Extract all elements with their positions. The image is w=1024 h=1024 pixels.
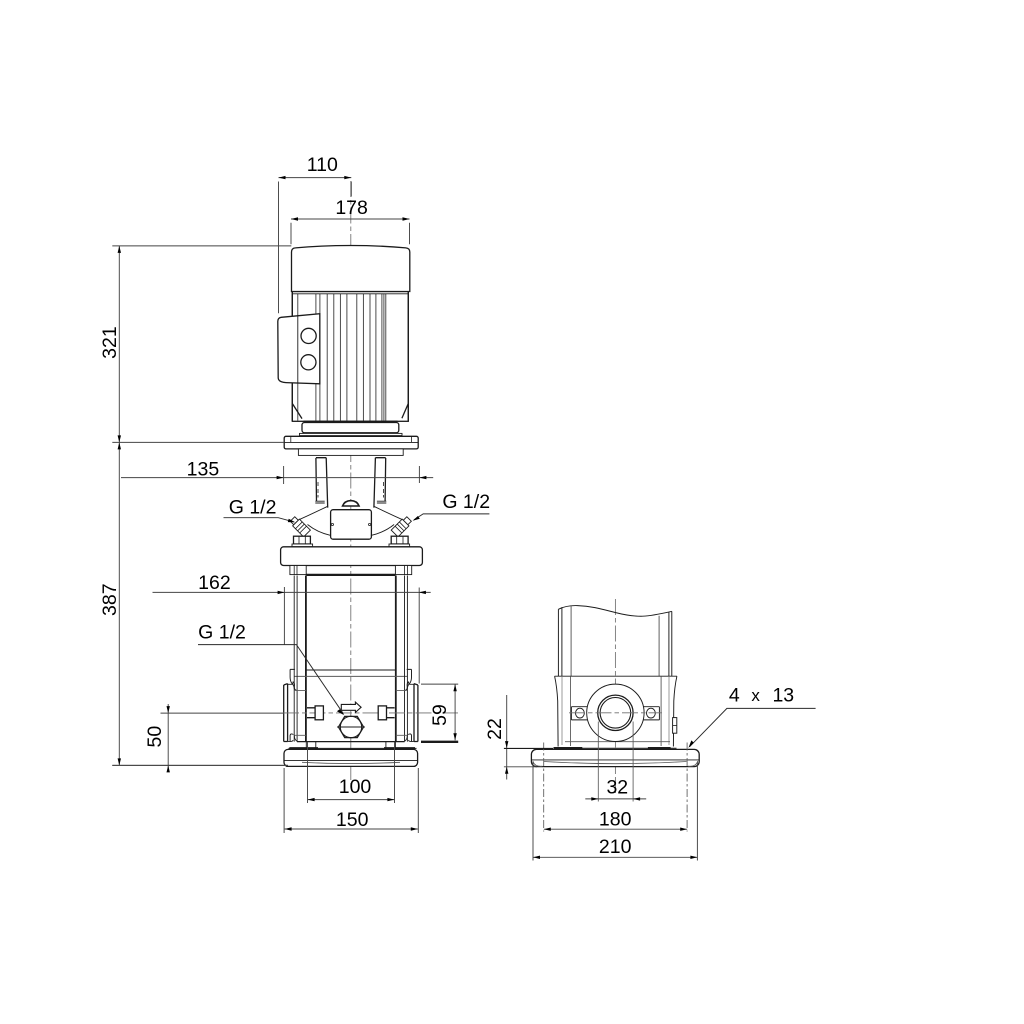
svg-text:x: x [751,686,760,705]
svg-text:G 1/2: G 1/2 [229,496,277,518]
svg-text:387: 387 [99,583,121,616]
svg-text:4: 4 [729,685,740,707]
svg-text:178: 178 [335,197,368,219]
svg-text:G 1/2: G 1/2 [442,491,490,513]
svg-text:13: 13 [772,685,794,707]
svg-text:321: 321 [99,326,121,359]
svg-text:100: 100 [339,776,372,798]
svg-text:150: 150 [336,809,369,831]
svg-text:32: 32 [606,777,628,799]
svg-text:110: 110 [307,154,338,176]
svg-text:210: 210 [599,836,632,858]
svg-text:180: 180 [599,808,632,830]
svg-text:G 1/2: G 1/2 [198,621,246,643]
svg-text:162: 162 [198,572,231,594]
svg-text:135: 135 [187,459,220,481]
svg-text:59: 59 [429,704,451,726]
svg-text:50: 50 [144,726,166,748]
svg-text:22: 22 [484,718,506,740]
